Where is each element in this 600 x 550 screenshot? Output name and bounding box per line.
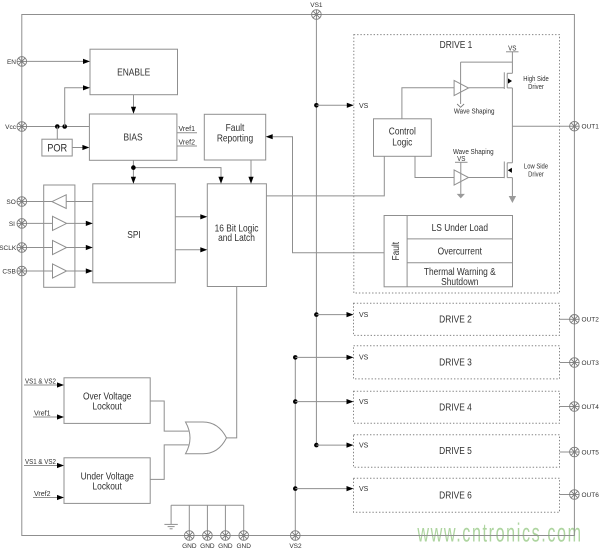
- svg-text:DRIVE 4: DRIVE 4: [439, 402, 472, 413]
- svg-text:BIAS: BIAS: [123, 132, 142, 143]
- svg-text:VS: VS: [359, 399, 369, 406]
- svg-text:GND: GND: [218, 543, 233, 550]
- svg-text:Driver: Driver: [528, 84, 544, 92]
- svg-text:VS: VS: [359, 355, 369, 362]
- svg-text:Lockout: Lockout: [93, 401, 123, 412]
- svg-text:SCLK: SCLK: [0, 245, 17, 252]
- svg-text:DRIVE 1: DRIVE 1: [440, 39, 473, 50]
- svg-text:and Latch: and Latch: [218, 232, 255, 243]
- svg-text:VS: VS: [457, 156, 466, 163]
- svg-text:GND: GND: [200, 543, 215, 550]
- svg-text:GND: GND: [236, 543, 251, 550]
- svg-text:Driver: Driver: [528, 171, 544, 179]
- svg-text:OUT2: OUT2: [582, 317, 600, 324]
- svg-text:Lockout: Lockout: [93, 481, 123, 492]
- svg-text:OUT1: OUT1: [582, 124, 600, 131]
- svg-text:DRIVE 2: DRIVE 2: [439, 314, 472, 325]
- svg-text:EN: EN: [7, 59, 16, 66]
- svg-text:Vcc: Vcc: [5, 124, 17, 131]
- svg-text:VS1 & VS2: VS1 & VS2: [25, 459, 56, 466]
- svg-text:VS1: VS1: [310, 2, 323, 9]
- svg-text:Overcurrent: Overcurrent: [438, 246, 483, 257]
- svg-text:Vref1: Vref1: [34, 410, 51, 417]
- svg-text:High Side: High Side: [523, 76, 549, 84]
- svg-text:VS: VS: [508, 45, 517, 52]
- svg-text:GND: GND: [182, 543, 197, 550]
- svg-text:Fault: Fault: [226, 122, 245, 133]
- svg-text:SPI: SPI: [127, 229, 141, 240]
- svg-text:ENABLE: ENABLE: [117, 67, 150, 78]
- svg-text:www.cntronics.com: www.cntronics.com: [417, 517, 583, 547]
- svg-text:VS: VS: [359, 443, 369, 450]
- svg-text:DRIVE 3: DRIVE 3: [439, 357, 472, 368]
- svg-text:VS2: VS2: [289, 543, 302, 550]
- svg-text:VS1 & VS2: VS1 & VS2: [25, 378, 56, 385]
- svg-text:Wave Shaping: Wave Shaping: [454, 108, 495, 116]
- svg-text:Vref2: Vref2: [179, 139, 196, 146]
- svg-text:OUT5: OUT5: [582, 449, 600, 456]
- svg-text:OUT3: OUT3: [582, 360, 600, 367]
- svg-text:SO: SO: [6, 199, 15, 206]
- svg-text:CSB: CSB: [2, 268, 15, 275]
- svg-text:OUT4: OUT4: [582, 404, 600, 411]
- svg-text:DRIVE 5: DRIVE 5: [439, 445, 472, 456]
- svg-text:VS: VS: [359, 486, 369, 493]
- svg-text:LS Under Load: LS Under Load: [432, 222, 488, 233]
- svg-text:Logic: Logic: [392, 137, 412, 148]
- svg-text:Reporting: Reporting: [217, 133, 253, 144]
- svg-text:SI: SI: [9, 221, 15, 228]
- svg-text:VS: VS: [359, 103, 369, 110]
- svg-text:Low Side: Low Side: [524, 163, 549, 171]
- svg-text:VS: VS: [359, 312, 369, 319]
- svg-text:Fault: Fault: [390, 241, 401, 260]
- svg-text:Control: Control: [389, 126, 416, 137]
- svg-text:DRIVE 6: DRIVE 6: [439, 490, 472, 501]
- svg-text:OUT6: OUT6: [582, 492, 600, 499]
- svg-text:POR: POR: [47, 143, 67, 155]
- svg-text:Vref2: Vref2: [34, 491, 51, 498]
- svg-text:Shutdown: Shutdown: [441, 276, 478, 287]
- svg-text:Vref1: Vref1: [179, 126, 196, 133]
